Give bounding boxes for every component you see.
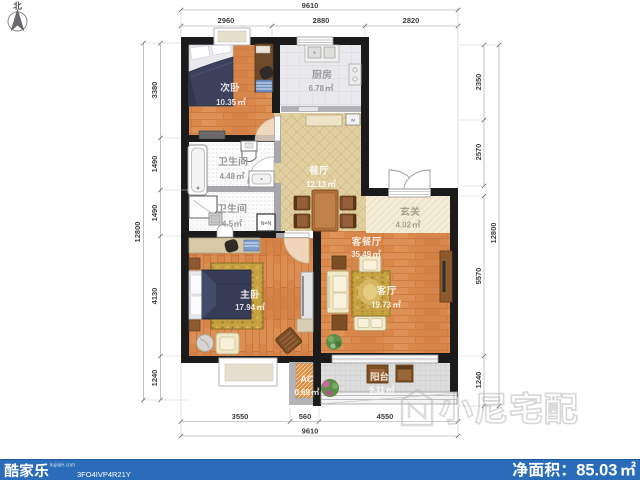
svg-text:4.5: 4.5 bbox=[222, 220, 234, 229]
svg-text:12800: 12800 bbox=[489, 223, 498, 244]
svg-text:4550: 4550 bbox=[377, 412, 394, 421]
svg-text:3550: 3550 bbox=[232, 412, 249, 421]
svg-text:3FO4IVP4R21Y: 3FO4IVP4R21Y bbox=[77, 470, 131, 479]
svg-text:35.49: 35.49 bbox=[351, 250, 372, 259]
svg-text:5.11: 5.11 bbox=[370, 386, 386, 395]
svg-text:4.02: 4.02 bbox=[396, 221, 412, 230]
svg-text:9610: 9610 bbox=[302, 1, 319, 10]
svg-text:kujiale.com: kujiale.com bbox=[50, 463, 75, 469]
svg-text:12.13: 12.13 bbox=[306, 180, 327, 189]
svg-text:17.94: 17.94 bbox=[235, 303, 256, 312]
svg-text:0.69: 0.69 bbox=[295, 388, 311, 397]
svg-text:10.35: 10.35 bbox=[216, 98, 237, 107]
svg-text:19.73: 19.73 bbox=[371, 301, 392, 310]
svg-text:9610: 9610 bbox=[302, 427, 319, 436]
svg-text:N=N: N=N bbox=[261, 221, 272, 227]
svg-text:6.78: 6.78 bbox=[309, 84, 325, 93]
svg-text:4130: 4130 bbox=[150, 288, 159, 305]
svg-text:AC: AC bbox=[300, 374, 313, 384]
svg-text:1490: 1490 bbox=[150, 205, 159, 222]
svg-text:2820: 2820 bbox=[403, 16, 420, 25]
svg-text:4.48: 4.48 bbox=[220, 172, 236, 181]
svg-text:IM: IM bbox=[351, 118, 355, 123]
svg-text:2880: 2880 bbox=[313, 16, 330, 25]
svg-text:2570: 2570 bbox=[474, 144, 483, 161]
svg-text:560: 560 bbox=[299, 412, 312, 421]
svg-text:12800: 12800 bbox=[133, 222, 142, 243]
svg-text:5570: 5570 bbox=[474, 268, 483, 285]
svg-text:1240: 1240 bbox=[150, 370, 159, 387]
svg-text:2960: 2960 bbox=[218, 16, 235, 25]
svg-text:2350: 2350 bbox=[474, 74, 483, 91]
svg-text:1490: 1490 bbox=[150, 156, 159, 173]
svg-text:85.03: 85.03 bbox=[576, 462, 617, 480]
svg-text:1240: 1240 bbox=[474, 372, 483, 389]
svg-text:3380: 3380 bbox=[150, 82, 159, 99]
